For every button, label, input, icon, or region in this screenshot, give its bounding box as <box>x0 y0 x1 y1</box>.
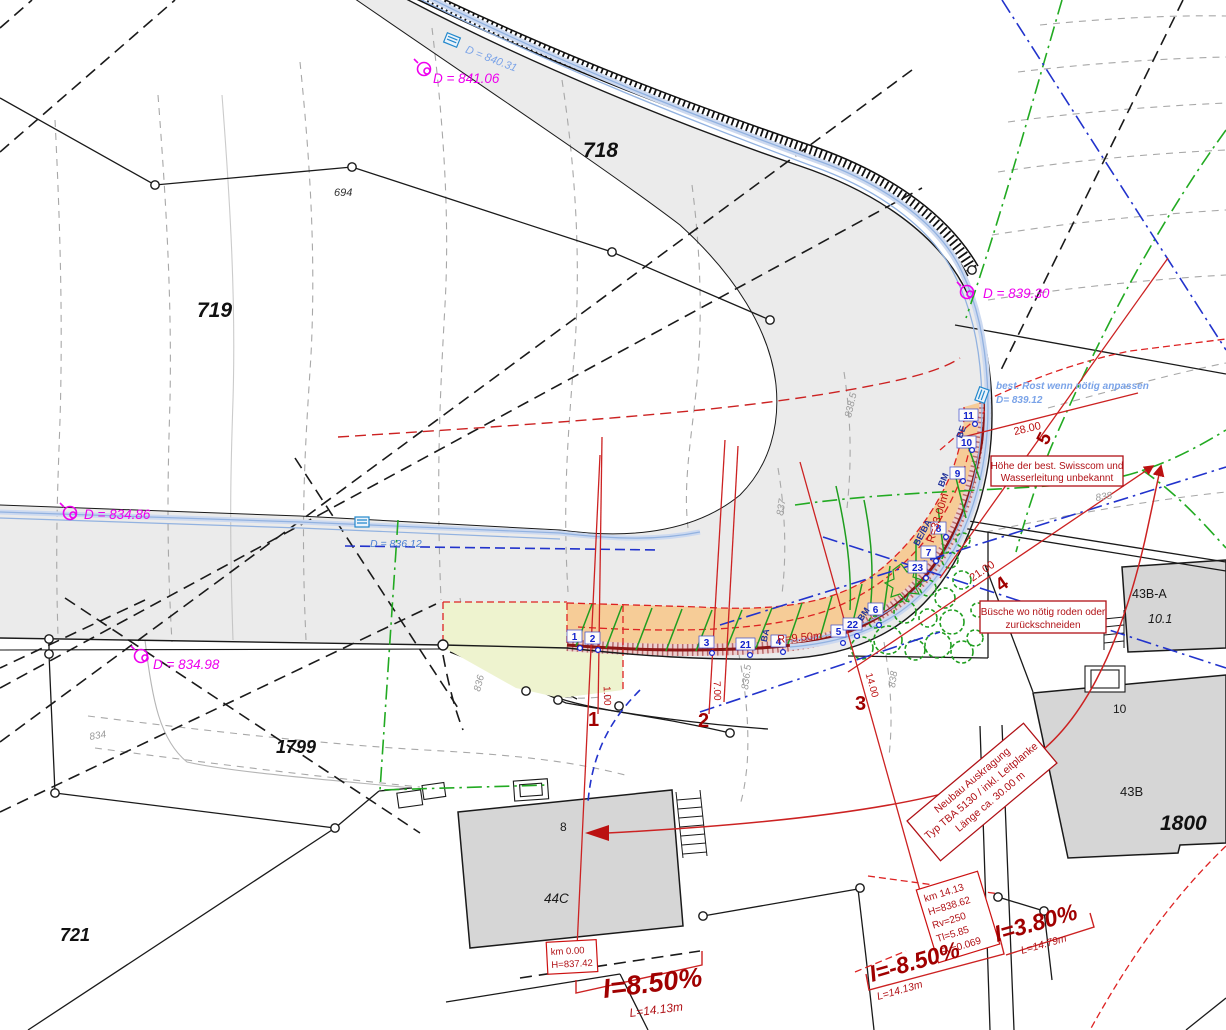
post-label: 2 <box>590 634 596 645</box>
house-number-10-1: 10.1 <box>1148 612 1172 626</box>
parcel-label-1799: 1799 <box>276 737 316 757</box>
post-label: 6 <box>873 605 879 616</box>
svg-text:km 0.00: km 0.00 <box>550 945 584 958</box>
parcel-label-694: 694 <box>334 187 352 199</box>
post-label: 9 <box>955 469 961 480</box>
post-label: 21 <box>740 640 752 651</box>
contour-lines-solid <box>145 95 412 788</box>
dim-7: 7.00 <box>711 681 723 701</box>
road-ribbon <box>0 0 992 659</box>
svg-text:836: 836 <box>472 673 487 692</box>
slope-1-length: L=14.13m <box>629 1000 684 1020</box>
parcel-label-718: 718 <box>583 139 618 162</box>
slope-3: I=3.80% <box>991 898 1080 946</box>
post-label: 7 <box>926 548 932 559</box>
km0-box: km 0.00 H=837.42 <box>546 940 598 975</box>
parcel-label-719: 719 <box>197 299 232 322</box>
site-plan-svg: 1 2 3 21 4 5 22 6 23 7 8 9 10 11 BA BM B… <box>0 0 1226 1030</box>
post-label: 1 <box>572 632 578 643</box>
manhole-icon <box>414 59 431 76</box>
manhole-label: D = 839.30 <box>983 286 1050 301</box>
note-buesche: Büsche wo nötig roden oder zurückschneid… <box>980 601 1106 633</box>
post-label: 22 <box>847 620 859 631</box>
pipe-label: D = 836.12 <box>370 538 422 550</box>
site-plan-page: 1 2 3 21 4 5 22 6 23 7 8 9 10 11 BA BM B… <box>0 0 1226 1030</box>
manhole-label: D = 834.98 <box>153 657 220 672</box>
slope-1: I=8.50% <box>601 962 704 1004</box>
parcel-label-1800: 1800 <box>1160 812 1207 835</box>
note-swisscom: Höhe der best. Swisscom und Wasserleitun… <box>991 456 1124 486</box>
section-number-3: 3 <box>855 693 866 715</box>
svg-text:834: 834 <box>89 729 108 743</box>
section-number-2: 2 <box>698 710 709 732</box>
building-43b-a <box>1122 560 1226 652</box>
road-surface <box>0 0 992 659</box>
parcel-label-721: 721 <box>60 925 90 945</box>
manhole-label: D = 834.86 <box>84 507 151 522</box>
post-label: 3 <box>704 638 710 649</box>
stairs-43b-a <box>1104 610 1124 650</box>
building-label-43b-a: 43B-A <box>1132 587 1167 601</box>
svg-text:zurückschneiden: zurückschneiden <box>1005 620 1080 631</box>
svg-text:Wasserleitung unbekannt: Wasserleitung unbekannt <box>1001 473 1114 484</box>
post-label: 11 <box>963 411 974 422</box>
building-label-43b: 43B <box>1120 784 1143 799</box>
rost-note: D= 839.12 <box>996 395 1043 406</box>
svg-text:836.5: 836.5 <box>740 664 754 691</box>
stairs-44c <box>676 790 707 858</box>
svg-text:838: 838 <box>1095 490 1114 504</box>
svg-text:Höhe der best. Swisscom und: Höhe der best. Swisscom und <box>991 461 1124 472</box>
post-label: 23 <box>912 563 924 574</box>
dim-1: 1.00 <box>601 686 613 706</box>
drain-grate-icon <box>355 517 369 527</box>
building-44c <box>458 790 683 948</box>
post-label: 5 <box>836 627 842 638</box>
section-number-1: 1 <box>588 709 599 731</box>
house-number-10: 10 <box>1113 702 1127 716</box>
manhole-icon <box>131 646 148 663</box>
house-number-8: 8 <box>560 820 567 834</box>
svg-text:838: 838 <box>887 670 900 688</box>
svg-text:Büsche wo nötig roden oder: Büsche wo nötig roden oder <box>981 607 1106 618</box>
steps-44c <box>396 783 446 808</box>
rost-note: best. Rost wenn nötig anpassen <box>996 381 1149 392</box>
building-label-44c: 44C <box>544 891 569 906</box>
svg-text:H=837.42: H=837.42 <box>551 958 593 971</box>
note-neubau: Neubau Auskragung Typ TBA 5130 / inkl. L… <box>907 723 1057 861</box>
manhole-label: D = 841.06 <box>433 71 500 86</box>
